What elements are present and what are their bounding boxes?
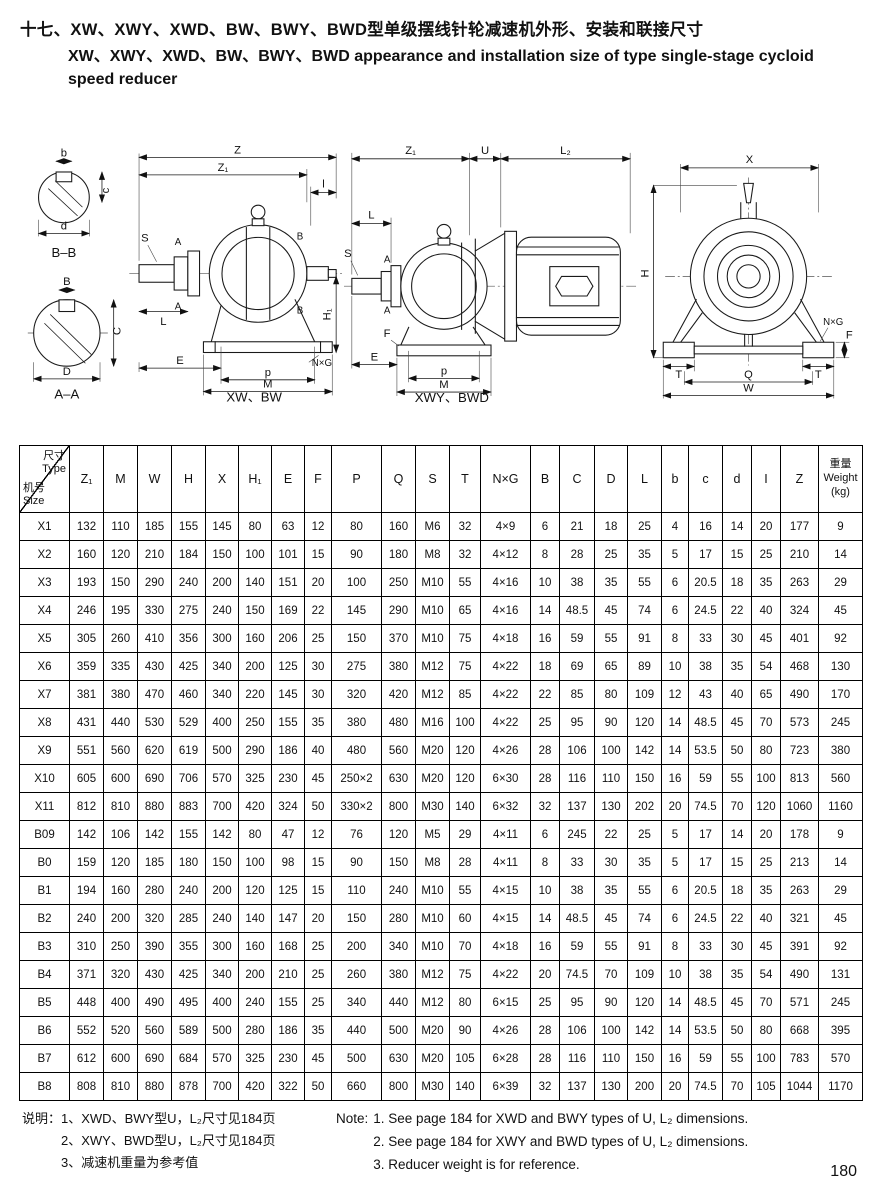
dim-cell: 45 [752,933,781,961]
dim-cell: 14 [531,905,560,933]
dim-cell: 10 [531,877,560,905]
dim-cell: 63 [272,513,305,541]
dim-cell: 70 [752,989,781,1017]
dim-cell: 120 [450,765,481,793]
dim-cell: 33 [560,849,595,877]
dim-cell: 74.5 [560,961,595,989]
dim-cell: 130 [595,1073,628,1101]
dim-cell: 448 [70,989,104,1017]
dim-cell: 480 [382,709,416,737]
dim-cell: 30 [723,933,752,961]
dim-F: F [384,328,391,340]
dim-cell: 605 [70,765,104,793]
dim-cell: 490 [781,961,819,989]
dim-cell: 690 [138,1045,172,1073]
table-row: B331025039035530016016825200340M10704×18… [20,933,863,961]
dim-cell: 74 [628,905,662,933]
page-header: 十七、XW、XWY、XWD、BW、BWY、BWD型单级摆线针轮减速机外形、安装和… [20,16,860,91]
dim-cell: 120 [450,737,481,765]
table-row: X1060560069070657032523045250×2630M20120… [20,765,863,793]
dim-cell: 245 [560,821,595,849]
col-header: H₁ [239,446,272,513]
notes: 说明： 1、XWD、BWY型U，L₂尺寸见184页 2、XWY、BWD型U，L₂… [22,1108,858,1177]
caption-xw-bw: XW、BW [226,389,282,404]
table-row: X1181281088088370042032450330×2800M30140… [20,793,863,821]
dim-cell: 80 [239,821,272,849]
row-size-label: B7 [20,1045,70,1073]
dim-cell: 25 [531,989,560,1017]
dim-cell: M5 [416,821,450,849]
dim-cell: 195 [104,597,138,625]
col-header: F [305,446,332,513]
table-row: X319315029024020014015120100250M10554×16… [20,569,863,597]
table-row: X635933543042534020012530275380M12754×22… [20,653,863,681]
dim-cell: 570 [206,765,239,793]
dim-cell: 48.5 [560,905,595,933]
dim-cell: 15 [723,849,752,877]
dim-cell: 6 [662,877,689,905]
row-size-label: X4 [20,597,70,625]
side-view-xw-bw: Z Z₁ l A [129,144,342,404]
dim-cell: 560 [819,765,863,793]
dim-cell: 53.5 [689,737,723,765]
dim-cell: 529 [172,709,206,737]
row-size-label: X10 [20,765,70,793]
dim-cell: 250×2 [332,765,382,793]
dim-cell: 460 [172,681,206,709]
dim-cell: 100 [752,765,781,793]
row-size-label: B6 [20,1017,70,1045]
dim-cell: 147 [272,905,305,933]
dim-cell: 14 [819,541,863,569]
col-header-weight: 重量Weight(kg) [819,446,863,513]
dim-cell: 45 [595,905,628,933]
dim-cell: 28 [450,849,481,877]
dim-cell: 45 [819,905,863,933]
dim-cell: 20 [531,961,560,989]
dim-cell: 150 [332,625,382,653]
dim-NxG: N×G [312,358,332,369]
dim-cell: 380 [104,681,138,709]
dim-cell: 700 [206,793,239,821]
dim-cell: M16 [416,709,450,737]
table-row: B880881088087870042032250660800M301406×3… [20,1073,863,1101]
dim-cell: M30 [416,1073,450,1101]
dim-cell: 30 [595,849,628,877]
dim-cell: 4×11 [481,821,531,849]
dim-cell: 22 [531,681,560,709]
dim-cell: 109 [628,961,662,989]
dim-cell: M10 [416,877,450,905]
dim-cell: 600 [104,1045,138,1073]
dim-cell: 880 [138,1073,172,1101]
dim-cell: 300 [206,625,239,653]
col-header: I [752,446,781,513]
dim-cell: 12 [662,681,689,709]
dim-cell: 109 [628,681,662,709]
dim-cell: 263 [781,877,819,905]
dim-cell: 810 [104,793,138,821]
dim-cell: 137 [560,1073,595,1101]
table-row: B224020032028524014014720150280M10604×15… [20,905,863,933]
dim-cell: 4×22 [481,653,531,681]
dim-C: C [112,327,124,335]
dim-cell: 14 [662,1017,689,1045]
dim-cell: 32 [450,513,481,541]
dim-cell: 59 [689,1045,723,1073]
dim-cell: 120 [382,821,416,849]
dim-cell: 150 [206,849,239,877]
dim-cell: 490 [138,989,172,1017]
dim-cell: 25 [305,625,332,653]
dim-cell: 10 [662,653,689,681]
dim-X: X [746,154,754,166]
dim-cell: 74 [628,597,662,625]
col-header: T [450,446,481,513]
row-size-label: B4 [20,961,70,989]
dim-cell: 30 [305,653,332,681]
dim-cell: 420 [239,793,272,821]
dim-cell: 140 [239,905,272,933]
dim-cell: 110 [595,765,628,793]
dim-cell: 800 [382,1073,416,1101]
dim-cell: 40 [305,737,332,765]
dim-cell: 325 [239,1045,272,1073]
row-size-label: X5 [20,625,70,653]
dim-cell: 32 [531,1073,560,1101]
dim-cell: M6 [416,513,450,541]
dim-cell: M20 [416,1045,450,1073]
dim-cell: 160 [382,513,416,541]
dim-cell: 425 [172,653,206,681]
page-title-en-line1: XW、XWY、XWD、BW、BWY、BWD appearance and ins… [68,45,860,68]
dim-cell: 10 [662,961,689,989]
dim-cell: 400 [206,709,239,737]
dim-cell: 230 [272,1045,305,1073]
dim-cell: 14 [723,513,752,541]
dim-cell: 706 [172,765,206,793]
dim-cell: 69 [560,653,595,681]
dim-Z1: Z₁ [218,162,229,174]
dim-H1: H₁ [321,308,333,320]
dim-cell: 275 [332,653,382,681]
dim-cell: 500 [206,737,239,765]
dim-cell: 240 [206,597,239,625]
dim-cell: 40 [723,681,752,709]
dim-cell: 120 [104,849,138,877]
row-size-label: B5 [20,989,70,1017]
dim-cell: 16 [689,513,723,541]
dim-cell: 151 [272,569,305,597]
dim-cell: 660 [332,1073,382,1101]
dim-cell: 75 [450,961,481,989]
dim-cell: 38 [560,877,595,905]
dim-cell: M10 [416,933,450,961]
dim-cell: 684 [172,1045,206,1073]
dim-cell: 125 [272,877,305,905]
dim-cell: 560 [382,737,416,765]
dim-cell: 50 [723,1017,752,1045]
dim-cell: 45 [723,989,752,1017]
dim-cell: 21 [560,513,595,541]
dim-cell: 6×15 [481,989,531,1017]
dim-cell: 420 [239,1073,272,1101]
dim-cell: 33 [689,933,723,961]
dim-T-left: T [675,369,682,381]
dim-cell: 500 [382,1017,416,1045]
dim-cell: 440 [382,989,416,1017]
dim-cell: 14 [662,737,689,765]
dim-cell: 330×2 [332,793,382,821]
dim-cell: 25 [305,989,332,1017]
notes-en-label: Note: [336,1108,368,1177]
dim-cell: 50 [305,793,332,821]
dim-cell: 4×15 [481,877,531,905]
table-row: X530526041035630016020625150370M10754×18… [20,625,863,653]
dim-cell: M20 [416,737,450,765]
dim-cell: 371 [70,961,104,989]
dim-cell: 35 [305,1017,332,1045]
dim-cell: 98 [272,849,305,877]
dim-cell: M20 [416,765,450,793]
dim-cell: 240 [382,877,416,905]
dim-cell: 90 [595,709,628,737]
dim-cell: 280 [239,1017,272,1045]
col-header: Q [382,446,416,513]
dim-cell: 80 [595,681,628,709]
section-bb-caption: B–B [51,245,76,260]
dim-cell: 110 [104,513,138,541]
dim-cell: 40 [752,597,781,625]
dim-cell: 14 [819,849,863,877]
col-header: W [138,446,172,513]
dim-cell: 1044 [781,1073,819,1101]
dim-cell: 100 [595,1017,628,1045]
drawing-xwy-bwd: Z₁ U L₂ L [344,138,638,406]
corner-size: 机号Size [23,482,45,508]
dim-cell: 160 [239,625,272,653]
dim-cell: 6×30 [481,765,531,793]
dim-cell: 20 [662,1073,689,1101]
dim-cell: 142 [628,1017,662,1045]
dim-cell: 810 [104,1073,138,1101]
dim-cell: 55 [595,625,628,653]
table-row: X21601202101841501001011590180M8324×1282… [20,541,863,569]
dim-cell: 155 [272,709,305,737]
col-header: b [662,446,689,513]
dim-cell: 140 [450,1073,481,1101]
dim-cell: 340 [206,681,239,709]
dim-cell: 4×22 [481,681,531,709]
dim-cell: 495 [172,989,206,1017]
dim-cell: M10 [416,625,450,653]
dim-cell: 440 [104,709,138,737]
dim-cell: 90 [332,541,382,569]
dim-cell: 305 [70,625,104,653]
dim-cell: 25 [628,513,662,541]
dim-cell: 570 [206,1045,239,1073]
dim-cell: 150 [628,765,662,793]
dim-cell: 4×26 [481,737,531,765]
dim-cell: 468 [781,653,819,681]
dim-p: p [265,367,271,379]
drawing-front-view: X H N×G F [640,138,858,406]
dim-cell: 20 [752,821,781,849]
dim-cell: 380 [382,961,416,989]
dim-cell: 18 [531,653,560,681]
dim-cell: 16 [662,765,689,793]
dim-cell: 420 [382,681,416,709]
dim-cell: 200 [206,877,239,905]
page-title-en: XW、XWY、XWD、BW、BWY、BWD appearance and ins… [68,45,860,91]
dim-cell: 552 [70,1017,104,1045]
dim-cell: 110 [595,1045,628,1073]
col-header: N×G [481,446,531,513]
dim-cell: 45 [305,1045,332,1073]
dim-cell: 35 [752,877,781,905]
dim-cell: 630 [382,765,416,793]
col-header: d [723,446,752,513]
dim-cell: 100 [752,1045,781,1073]
dim-cell: 210 [272,961,305,989]
dim-cell: 8 [662,933,689,961]
dim-cell: 320 [138,905,172,933]
dim-cell: 620 [138,737,172,765]
dim-cell: M12 [416,989,450,1017]
dim-cell: 1160 [819,793,863,821]
dim-cell: 813 [781,765,819,793]
dim-cell: 47 [272,821,305,849]
dim-cell: 25 [752,849,781,877]
dim-S: S [141,232,148,244]
dim-cell: 263 [781,569,819,597]
dim-cell: 6 [662,569,689,597]
dim-cell: 40 [752,905,781,933]
dim-cell: 100 [239,541,272,569]
table-row: B655252056058950028018635440500M20904×26… [20,1017,863,1045]
dim-cell: 33 [689,625,723,653]
dim-cell: 74.5 [689,1073,723,1101]
dim-D: D [63,366,71,378]
dim-cell: 280 [382,905,416,933]
dim-cell: 60 [450,905,481,933]
dim-cell: 45 [723,709,752,737]
table-header-row: 尺寸Type机号SizeZ₁MWHXH₁EFPQSTN×GBCDLbcdIZ重量… [20,446,863,513]
dim-cell: 4×12 [481,541,531,569]
dim-cell: 50 [723,737,752,765]
dim-cell: 630 [382,1045,416,1073]
dim-cell: 91 [628,625,662,653]
dim-cell: 220 [239,681,272,709]
dim-cell: 35 [752,569,781,597]
section-mark-a-top: A [384,255,391,266]
table-row: B437132043042534020021025260380M12754×22… [20,961,863,989]
dim-cell: 440 [332,1017,382,1045]
dim-cell: 54 [752,961,781,989]
dim-cell: 116 [560,1045,595,1073]
dim-cell: 150 [104,569,138,597]
dim-cell: M12 [416,961,450,989]
dim-cell: 400 [104,989,138,1017]
dim-cell: 401 [781,625,819,653]
dim-cell: 120 [239,877,272,905]
note-zh-3: 3、减速机重量为参考值 [61,1152,276,1174]
dim-cell: 400 [206,989,239,1017]
dim-cell: 260 [104,625,138,653]
dim-Z1: Z₁ [405,145,416,157]
dim-cell: 245 [819,989,863,1017]
dim-S: S [344,248,352,260]
dim-cell: 120 [628,989,662,1017]
dim-cell: 530 [138,709,172,737]
dim-cell: 246 [70,597,104,625]
section-mark-b-bottom: B [297,305,304,316]
dim-cell: 150 [332,905,382,933]
dim-cell: 370 [382,625,416,653]
dim-cell: 70 [595,961,628,989]
col-header: H [172,446,206,513]
dim-cell: 240 [172,877,206,905]
dim-cell: 45 [305,765,332,793]
dim-cell: 240 [206,905,239,933]
dim-cell: 700 [206,1073,239,1101]
dim-cell: 6 [662,905,689,933]
dim-cell: 290 [239,737,272,765]
dim-cell: 25 [531,709,560,737]
dim-cell: 17 [689,849,723,877]
dim-cell: 74.5 [689,793,723,821]
dim-cell: 80 [752,737,781,765]
dim-cell: 391 [781,933,819,961]
dim-cell: 38 [689,653,723,681]
col-header: L [628,446,662,513]
dim-cell: 65 [752,681,781,709]
dim-cell: 25 [305,933,332,961]
dim-cell: 38 [689,961,723,989]
dim-cell: 4×26 [481,1017,531,1045]
row-size-label: B8 [20,1073,70,1101]
dim-cell: 800 [382,793,416,821]
dim-F: F [846,329,853,341]
dim-cell: 15 [723,541,752,569]
dim-cell: 131 [819,961,863,989]
dim-cell: 32 [450,541,481,569]
dim-cell: 193 [70,569,104,597]
dim-cell: 170 [819,681,863,709]
col-header: Z [781,446,819,513]
dim-cell: 80 [752,1017,781,1045]
dim-cell: 200 [206,569,239,597]
dim-cell: 200 [104,905,138,933]
dim-cell: 200 [628,1073,662,1101]
dim-cell: 290 [138,569,172,597]
dim-cell: 668 [781,1017,819,1045]
dim-cell: 560 [104,737,138,765]
dim-cell: 25 [628,821,662,849]
dim-cell: 75 [450,625,481,653]
dim-cell: 17 [689,541,723,569]
dim-cell: 723 [781,737,819,765]
dim-cell: 145 [206,513,239,541]
dim-cell: 6×28 [481,1045,531,1073]
dim-cell: 55 [723,765,752,793]
dim-cell: 35 [628,849,662,877]
dim-cell: 35 [723,653,752,681]
dim-cell: 186 [272,737,305,765]
dim-cell: 210 [138,541,172,569]
dim-cell: 6 [531,513,560,541]
col-header: Z₁ [70,446,104,513]
